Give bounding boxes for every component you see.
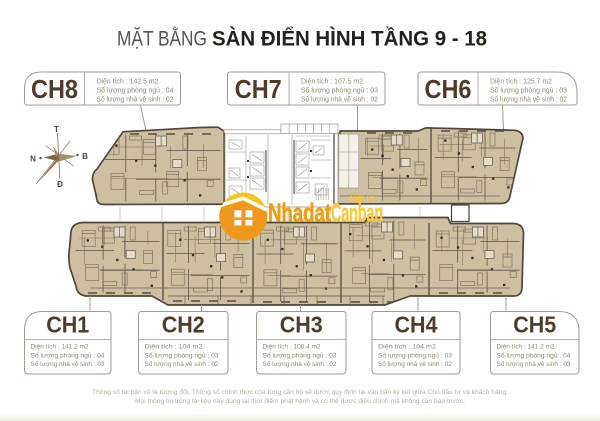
svg-text:CH6: CH6 (425, 74, 472, 104)
svg-text:Mọi thông tin trong tài liệu n: Mọi thông tin trong tài liệu này đúng tạ… (135, 396, 465, 405)
svg-text:Diện tích : 141.2 m2: Diện tích : 141.2 m2 (497, 344, 555, 351)
svg-text:Số lượng nhà vệ sinh : 02: Số lượng nhà vệ sinh : 02 (263, 359, 337, 368)
svg-text:Canban: Canban (331, 198, 383, 228)
svg-text:B: B (82, 152, 88, 161)
svg-text:Diện tích : 104 m2: Diện tích : 104 m2 (378, 344, 436, 351)
svg-text:N: N (30, 155, 36, 164)
svg-text:Số lượng phòng ngủ : 03: Số lượng phòng ngủ : 03 (145, 350, 219, 359)
svg-text:Số lượng nhà vệ sinh : 02: Số lượng nhà vệ sinh : 02 (378, 359, 452, 368)
svg-text:Số lượng phòng ngủ : 03: Số lượng phòng ngủ : 03 (263, 350, 337, 359)
svg-text:Diện tích : 141.2 m2: Diện tích : 141.2 m2 (31, 344, 89, 351)
svg-text:CH4: CH4 (395, 312, 438, 338)
svg-text:Số lượng phòng ngủ : 04: Số lượng phòng ngủ : 04 (497, 350, 571, 359)
svg-text:CH7: CH7 (235, 74, 282, 104)
svg-text:Diện tích : 107.5 m2: Diện tích : 107.5 m2 (301, 79, 363, 86)
svg-text:SÀN ĐIỂN HÌNH TẦNG 9 - 18: SÀN ĐIỂN HÌNH TẦNG 9 - 18 (212, 28, 487, 51)
svg-text:CH8: CH8 (31, 74, 78, 104)
svg-text:Thông số tại bản vẽ là tương đ: Thông số tại bản vẽ là tương đối. Thông … (92, 387, 508, 396)
svg-text:Nhadat: Nhadat (268, 198, 331, 228)
svg-text:Diện tích : 108.4 m2: Diện tích : 108.4 m2 (263, 344, 321, 351)
svg-text:Số lượng nhà vệ sinh : 03: Số lượng nhà vệ sinh : 03 (497, 359, 571, 368)
svg-text:Số lượng nhà vệ sinh : 02: Số lượng nhà vệ sinh : 02 (145, 359, 219, 368)
svg-text:Diện tích : 142.5 m2: Diện tích : 142.5 m2 (97, 79, 159, 86)
svg-text:CH1: CH1 (46, 312, 89, 338)
svg-text:Số lượng nhà vệ sinh : 02: Số lượng nhà vệ sinh : 02 (97, 95, 174, 104)
svg-text:Số lượng phòng ngủ : 04: Số lượng phòng ngủ : 04 (31, 350, 105, 359)
svg-text:Số lượng phòng ngủ : 03: Số lượng phòng ngủ : 03 (301, 86, 378, 95)
svg-text:CH2: CH2 (162, 312, 205, 338)
svg-text:CH5: CH5 (513, 312, 556, 338)
svg-text:Số lượng nhà vệ sinh : 02: Số lượng nhà vệ sinh : 02 (301, 95, 378, 104)
svg-text:Diện tích : 125.7 m2: Diện tích : 125.7 m2 (490, 79, 552, 86)
svg-text:Đ: Đ (57, 180, 63, 189)
svg-text:Số lượng phòng ngủ : 03: Số lượng phòng ngủ : 03 (378, 350, 452, 359)
svg-text:Diện tích : 104 m2: Diện tích : 104 m2 (145, 344, 203, 351)
svg-text:Số lượng phòng ngủ : 04: Số lượng phòng ngủ : 04 (97, 86, 174, 95)
svg-text:Số lượng nhà vệ sinh : 03: Số lượng nhà vệ sinh : 03 (31, 359, 105, 368)
svg-text:CH3: CH3 (280, 312, 323, 338)
svg-text:MẶT BẰNG: MẶT BẰNG (117, 27, 207, 51)
svg-text:Số lượng nhà vệ sinh : 02: Số lượng nhà vệ sinh : 02 (490, 95, 567, 104)
svg-text:Số lượng phòng ngủ : 03: Số lượng phòng ngủ : 03 (490, 86, 567, 95)
svg-text:T: T (54, 125, 59, 134)
